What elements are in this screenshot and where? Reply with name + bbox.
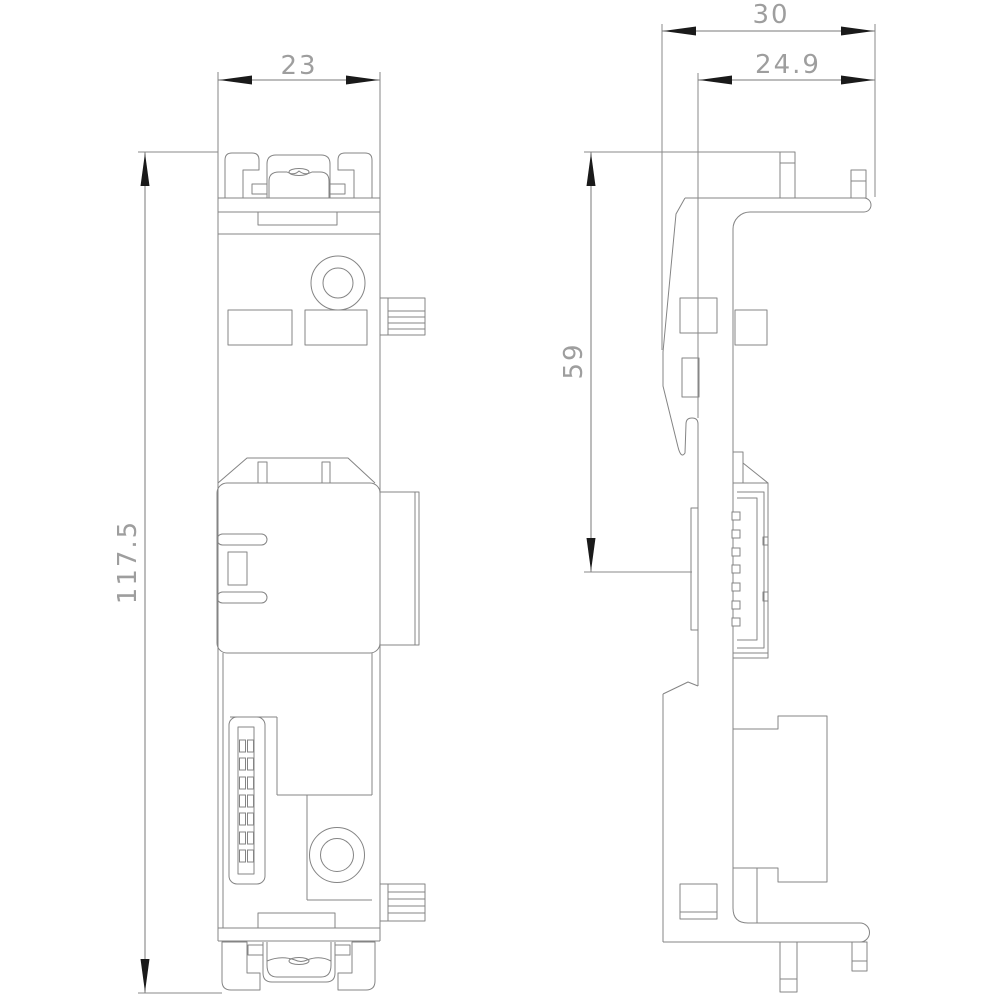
front-view xyxy=(217,72,425,990)
dimension-front-height: 117.5 xyxy=(113,152,222,993)
side-pins-bottom xyxy=(780,942,867,992)
side-backplane-connector xyxy=(732,452,768,658)
dimension-arrow xyxy=(141,959,150,992)
front-socket xyxy=(217,458,419,653)
side-profile xyxy=(663,198,871,942)
terminal-teeth-upper xyxy=(380,298,425,335)
front-body xyxy=(218,72,380,941)
dimension-arrow xyxy=(587,538,596,571)
side-view xyxy=(663,152,871,992)
bottom-din-clip xyxy=(222,942,375,990)
front-connector xyxy=(229,717,265,884)
dimension-arrow xyxy=(663,27,696,36)
dim-label-side-mount-height: 59 xyxy=(559,342,589,379)
dimension-arrow xyxy=(699,76,732,85)
latch-lens xyxy=(289,169,309,176)
dimension-front-width: 23 xyxy=(218,51,380,85)
front-screw-upper xyxy=(311,256,365,310)
front-label-windows xyxy=(228,310,367,345)
terminal-teeth-lower xyxy=(380,884,425,921)
dimension-arrow xyxy=(841,27,874,36)
dimension-arrow xyxy=(346,76,379,85)
dimension-side-depth-front: 24.9 xyxy=(698,50,875,418)
technical-drawing: 23 117.5 30 24.9 xyxy=(0,0,1000,1000)
drawing-svg: 23 117.5 30 24.9 xyxy=(0,0,1000,1000)
dim-label-side-depth-total: 30 xyxy=(752,0,789,30)
dimension-arrow xyxy=(219,76,252,85)
top-din-clip xyxy=(225,153,372,198)
socket-side-tab xyxy=(380,492,419,645)
front-screw-lower xyxy=(310,828,365,883)
side-pins-top xyxy=(780,152,866,198)
dimension-arrow xyxy=(587,153,596,186)
dim-label-front-height: 117.5 xyxy=(113,520,143,604)
dim-label-side-depth-front: 24.9 xyxy=(755,50,821,80)
dimension-arrow xyxy=(141,153,150,186)
dimensions: 23 117.5 30 24.9 xyxy=(113,0,875,993)
side-lower-block xyxy=(733,716,827,882)
dim-label-front-width: 23 xyxy=(280,51,317,81)
dimension-arrow xyxy=(841,76,874,85)
